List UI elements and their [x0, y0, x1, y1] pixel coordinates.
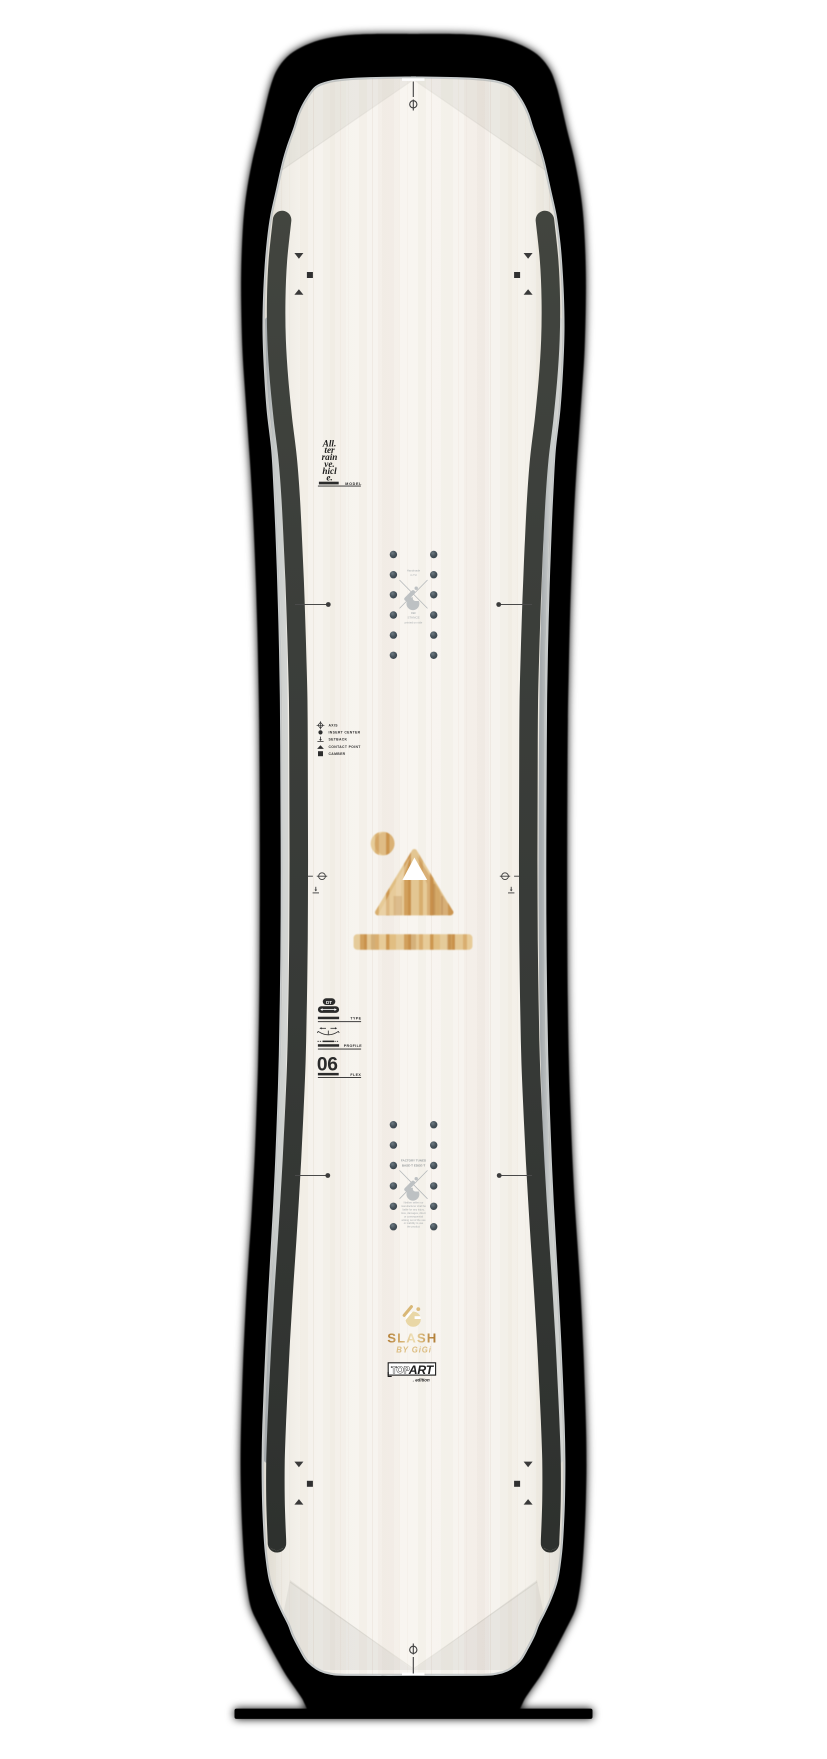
- svg-text:CAMBER: CAMBER: [329, 752, 346, 756]
- svg-text:Handmade: Handmade: [407, 568, 421, 572]
- svg-text:the product: the product: [407, 1225, 420, 1229]
- svg-text:AXIS: AXIS: [329, 724, 339, 728]
- svg-text:SETBACK: SETBACK: [329, 738, 348, 742]
- svg-text:manufacturer shall be: manufacturer shall be: [401, 1204, 426, 1208]
- svg-text:loss, damages, direct: loss, damages, direct: [401, 1211, 426, 1215]
- svg-text:printed on side: printed on side: [405, 621, 423, 625]
- svg-text:or consequential: or consequential: [404, 1214, 423, 1218]
- svg-text:in TU: in TU: [410, 573, 416, 577]
- svg-text:MODEL: MODEL: [345, 482, 362, 486]
- svg-text:STANCE: STANCE: [407, 616, 419, 620]
- svg-text:Neither seller nor: Neither seller nor: [404, 1201, 424, 1205]
- svg-text:ART: ART: [408, 1363, 435, 1377]
- svg-text:e.: e.: [326, 472, 332, 482]
- svg-text:06: 06: [317, 1054, 338, 1075]
- svg-text:DT: DT: [326, 1000, 332, 1005]
- svg-text:. edition: . edition: [413, 1378, 430, 1383]
- svg-text:TYPE: TYPE: [350, 1017, 361, 1021]
- svg-text:CONTACT POINT: CONTACT POINT: [329, 745, 362, 749]
- svg-text:INSERT CENTER: INSERT CENTER: [329, 731, 361, 735]
- svg-text:FLEX: FLEX: [350, 1073, 361, 1077]
- svg-text:liable for any injury,: liable for any injury,: [402, 1207, 424, 1211]
- svg-text:BASE-T EDGE-T: BASE-T EDGE-T: [402, 1164, 426, 1168]
- svg-text:TOP: TOP: [391, 1365, 410, 1375]
- svg-text:BY GiGi: BY GiGi: [396, 1346, 432, 1355]
- svg-text:SLASH: SLASH: [387, 1331, 437, 1346]
- svg-text:FACTORY TUNED: FACTORY TUNED: [401, 1158, 427, 1162]
- svg-text:PROFILE: PROFILE: [344, 1044, 363, 1048]
- svg-text:or inability to use: or inability to use: [404, 1221, 424, 1225]
- svg-text:arising out of the use: arising out of the use: [401, 1218, 426, 1222]
- svg-text:REF: REF: [411, 611, 417, 615]
